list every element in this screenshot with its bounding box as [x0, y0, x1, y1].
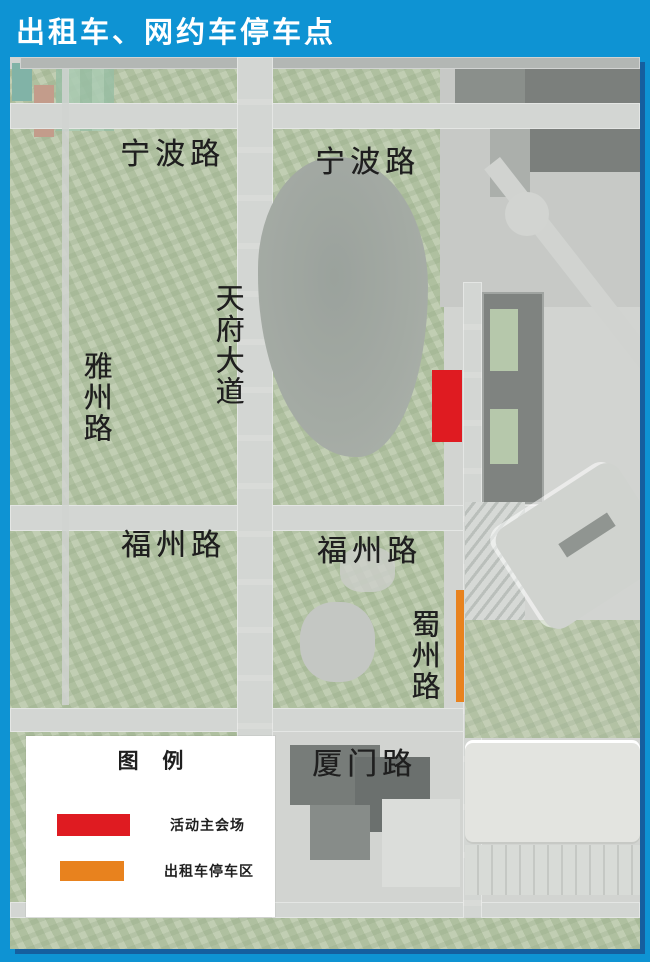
road-label-shuzhou: 蜀州路	[402, 609, 444, 702]
road-label-xiamen: 厦门路	[312, 739, 417, 783]
legend-label-main-venue: 活动主会场	[170, 815, 245, 835]
legend-swatch-taxi-parking	[60, 861, 124, 881]
legend-swatch-main-venue	[57, 814, 130, 836]
legend-item-taxi-parking: 出租车停车区	[26, 861, 275, 881]
poster-page: 出租车、网约车停车点	[0, 0, 650, 962]
road-label-fuzhou-left: 福州路	[121, 520, 226, 564]
page-title: 出租车、网约车停车点	[16, 9, 336, 51]
legend-item-main-venue: 活动主会场	[26, 814, 275, 836]
road-label-fuzhou-right: 福州路	[317, 526, 422, 570]
road-label-tianfu-avenue: 天府大道	[206, 283, 248, 407]
legend-label-taxi-parking: 出租车停车区	[164, 861, 254, 881]
road-label-ningbo-left: 宁波路	[120, 129, 225, 173]
satellite-map: 宁波路 宁波路 天府大道 雅州路 福州路 福州路 蜀州路 厦门路 图 例 活动主…	[10, 57, 640, 949]
road-label-ningbo-right: 宁波路	[315, 137, 420, 181]
legend-box: 图 例 活动主会场 出租车停车区	[26, 736, 275, 917]
legend-title: 图 例	[26, 745, 275, 775]
road-label-yazhou: 雅州路	[74, 351, 116, 444]
main-venue-marker	[432, 370, 462, 442]
taxi-parking-marker	[456, 590, 464, 702]
